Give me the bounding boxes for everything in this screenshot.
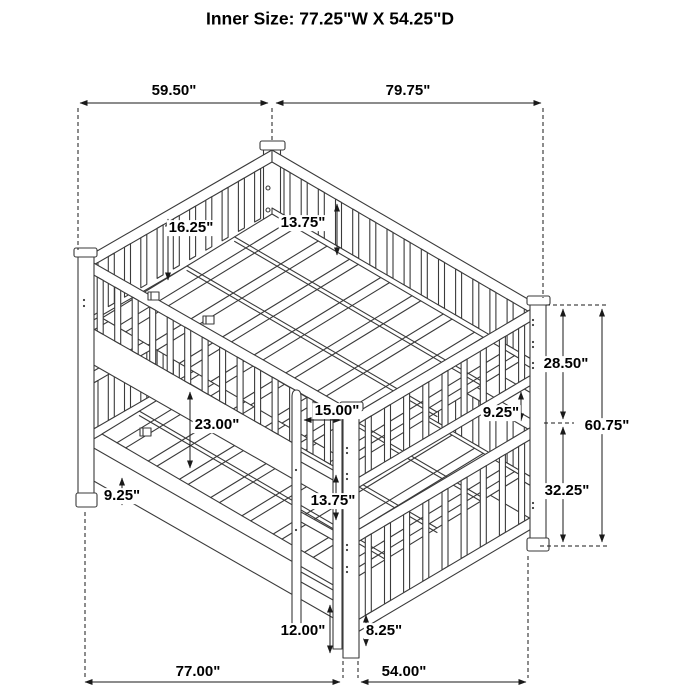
dim-side-rail-9-25: 9.25" (481, 405, 521, 421)
dim-total-height-60-75: 60.75" (583, 418, 632, 434)
dim-lower-rail-9-25: 9.25" (102, 488, 142, 504)
dim-upper-rail-13-75: 13.75" (279, 215, 328, 231)
dim-ladder-width-15-00: 15.00" (313, 403, 362, 419)
dim-footrail-8-25: 8.25" (364, 623, 404, 639)
inner-size-title: Inner Size: 77.25"W X 54.25"D (206, 9, 454, 30)
dim-top-depth-59-50: 59.50" (150, 83, 199, 99)
dim-underbed-12-00: 12.00" (279, 623, 328, 639)
dim-upper-height-28-50: 28.50" (542, 356, 591, 372)
bunk-bed-line-drawing (0, 0, 700, 700)
bunk-bed-dimension-diagram: Inner Size: 77.25"W X 54.25"D 59.50" 79.… (0, 0, 700, 700)
dim-bottom-depth-54-00: 54.00" (380, 664, 429, 680)
dim-top-width-79-75: 79.75" (384, 83, 433, 99)
dim-clearance-23-00: 23.00" (193, 417, 242, 433)
dim-lower-deck-13-75: 13.75" (309, 493, 358, 509)
dim-bottom-width-77-00: 77.00" (174, 664, 223, 680)
dim-lower-height-32-25: 32.25" (543, 483, 592, 499)
dim-guardrail-16-25: 16.25" (167, 220, 216, 236)
